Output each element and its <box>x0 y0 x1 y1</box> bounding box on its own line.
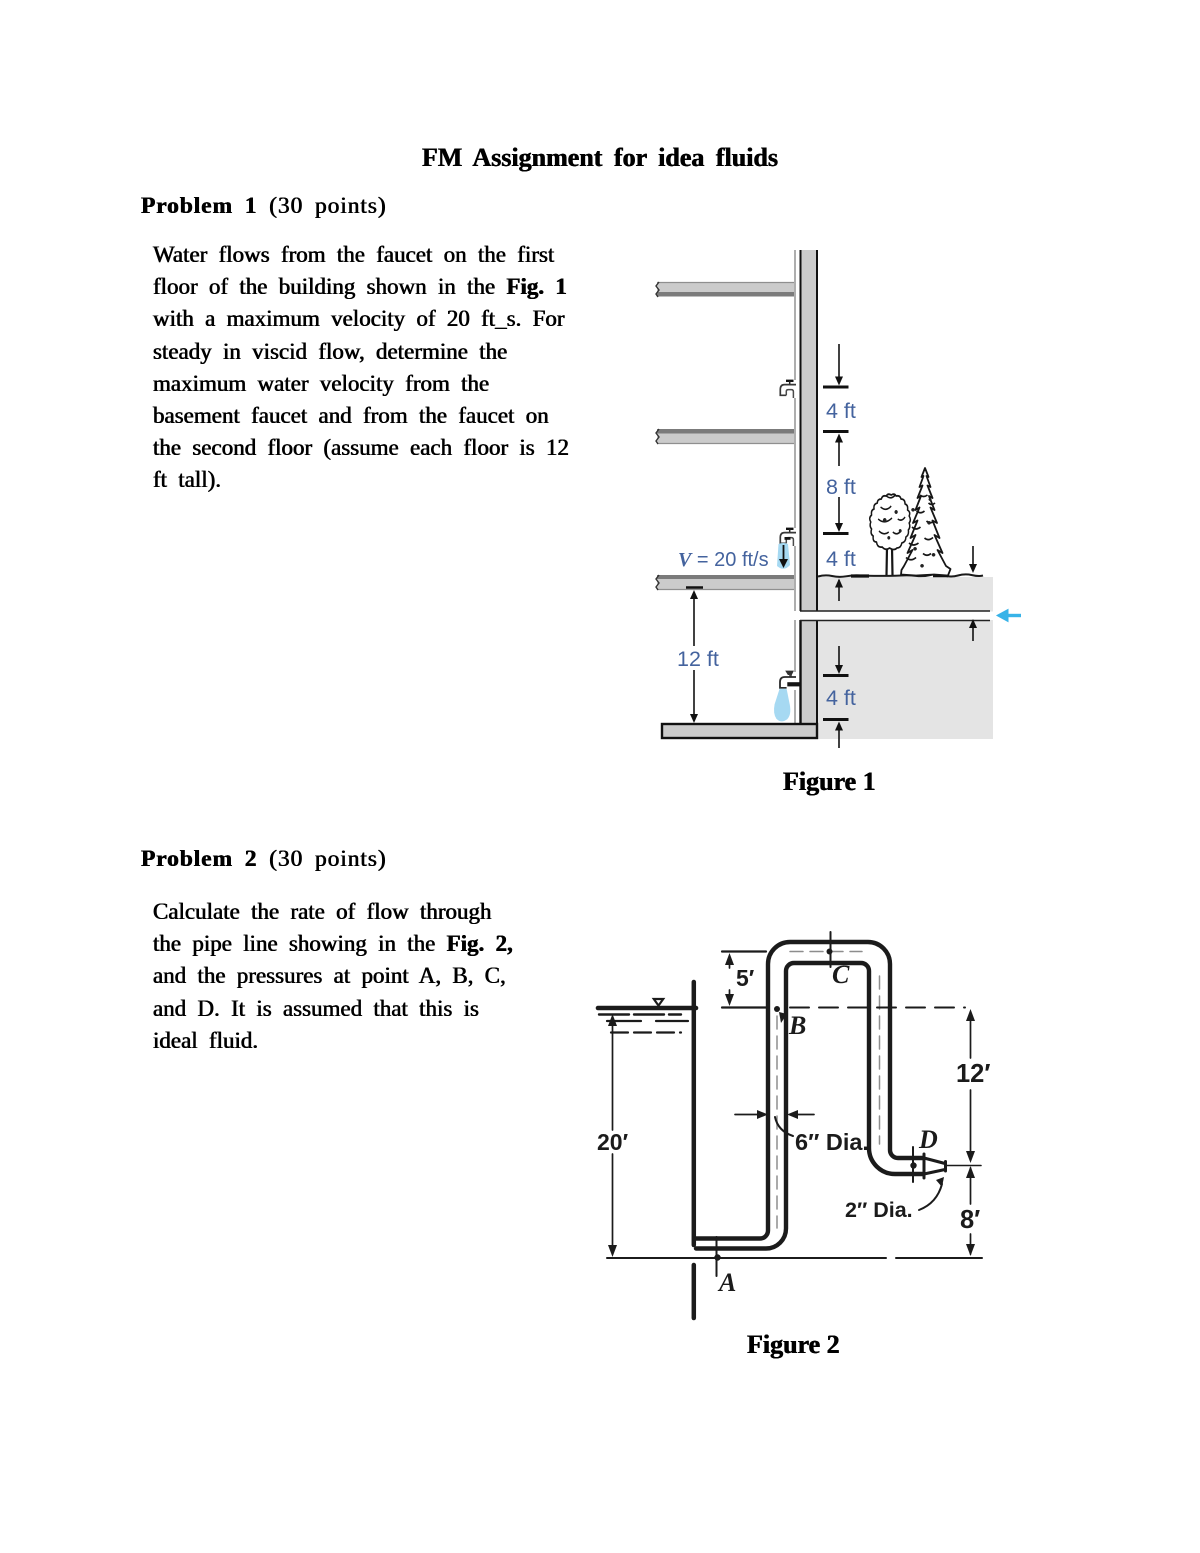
svg-text:6″ Dia.: 6″ Dia. <box>795 1129 869 1155</box>
svg-text:D: D <box>918 1125 938 1154</box>
svg-text:8′: 8′ <box>960 1206 980 1234</box>
svg-text:4 ft: 4 ft <box>826 686 856 710</box>
svg-text:8 ft: 8 ft <box>826 475 856 499</box>
svg-text:4 ft: 4 ft <box>826 399 856 423</box>
svg-text:5′: 5′ <box>736 965 755 991</box>
svg-text:4 ft: 4 ft <box>826 547 856 571</box>
svg-text:20′: 20′ <box>597 1129 629 1155</box>
svg-text:B: B <box>788 1011 806 1040</box>
svg-text:2″ Dia.: 2″ Dia. <box>845 1198 913 1222</box>
svg-text:A: A <box>717 1268 736 1297</box>
svg-text:C: C <box>832 960 850 989</box>
svg-text:12′: 12′ <box>956 1060 990 1088</box>
svg-text:12 ft: 12 ft <box>677 647 719 671</box>
svg-text:V = 20 ft/s: V = 20 ft/s <box>678 549 769 571</box>
